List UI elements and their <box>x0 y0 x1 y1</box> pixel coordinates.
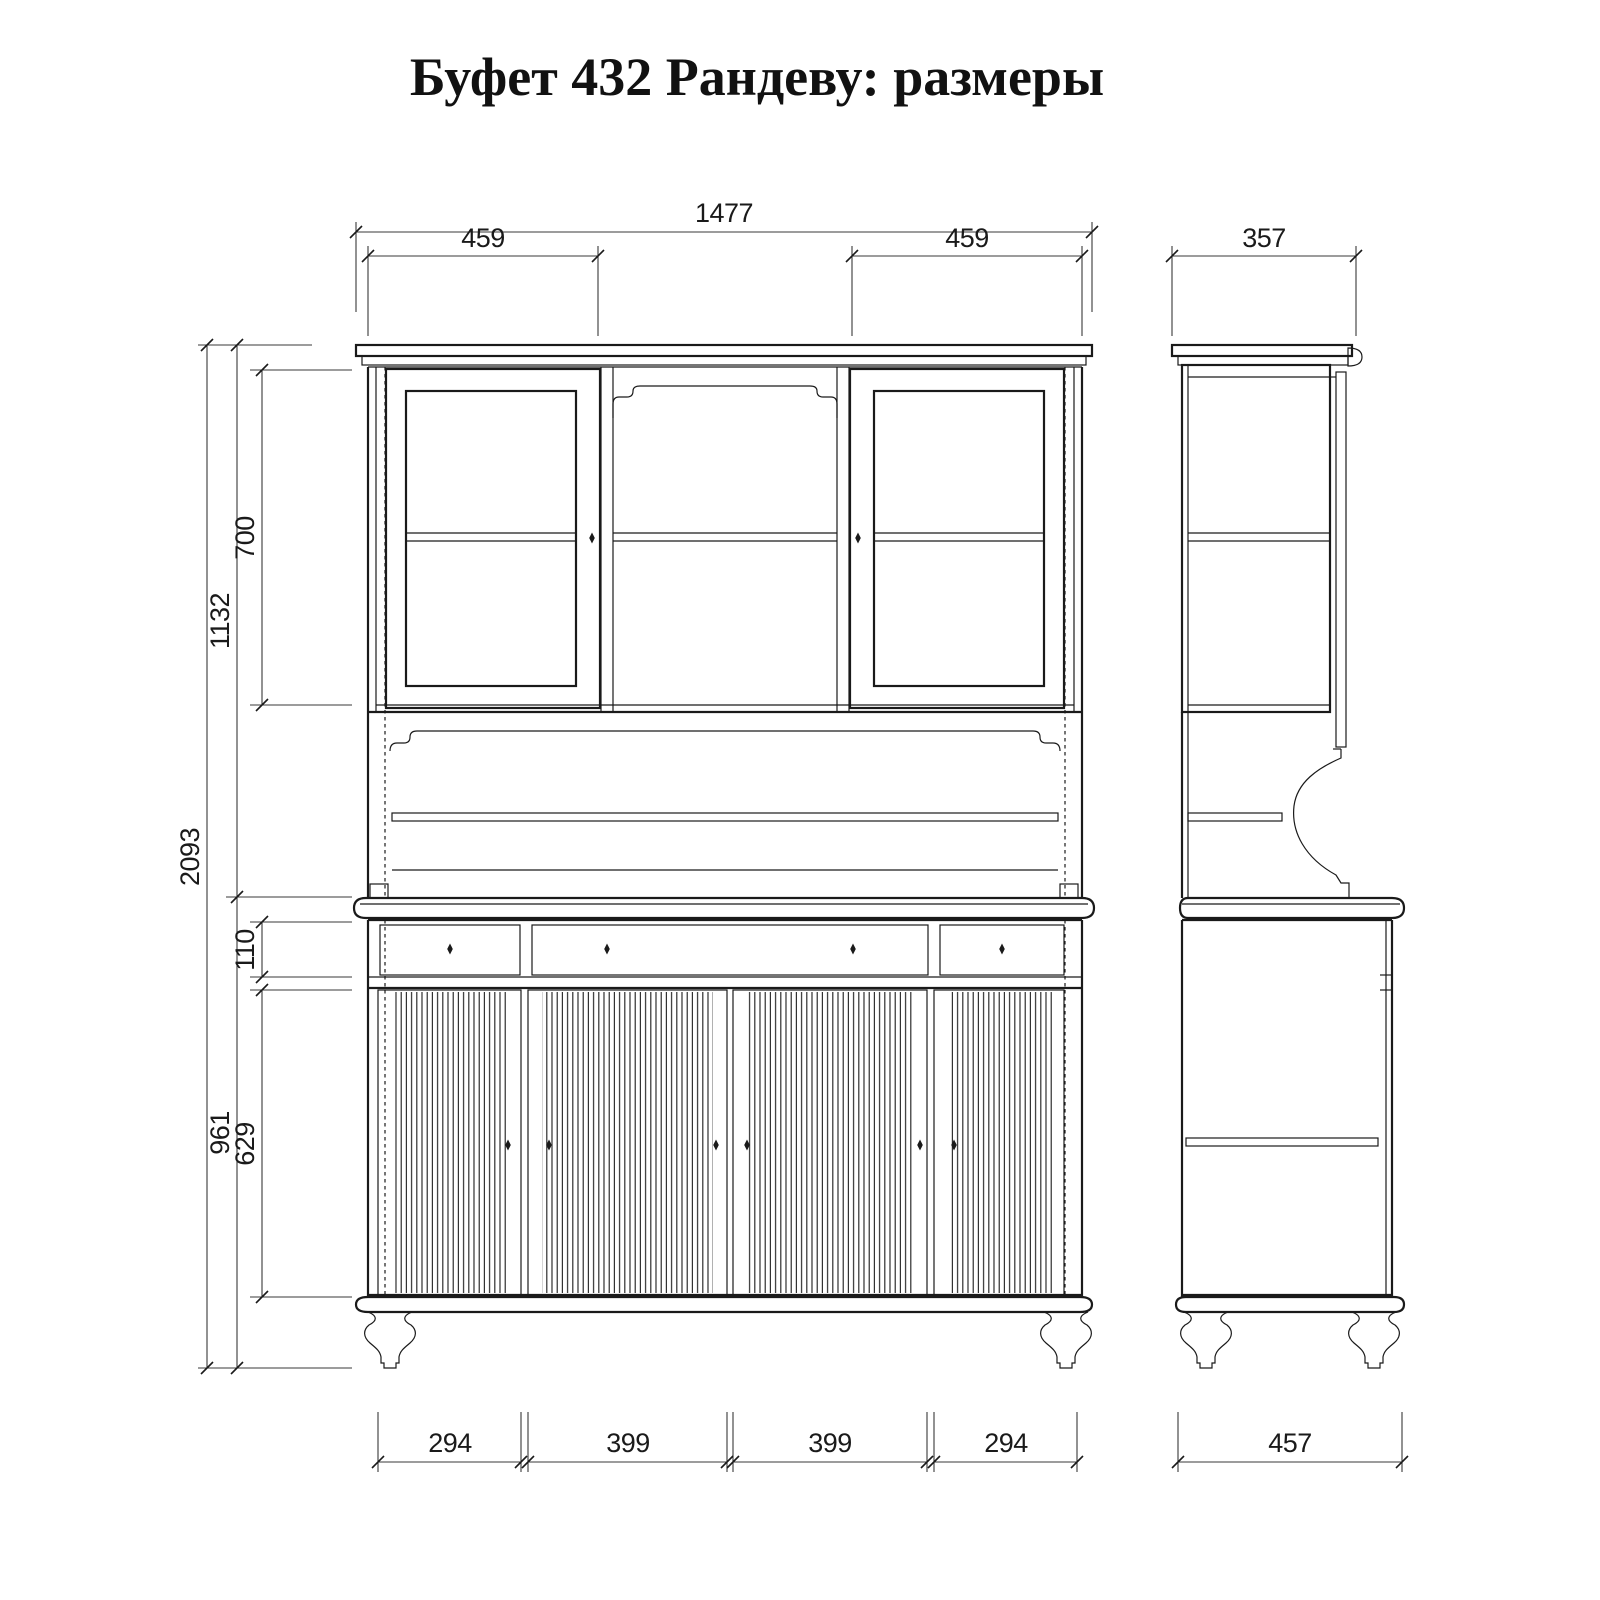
drawer-knob-icon <box>999 944 1005 955</box>
dim-lower-door4-width: 294 <box>984 1428 1028 1458</box>
front-left-foot <box>365 1312 416 1368</box>
door-fluting <box>392 992 507 1293</box>
plate-shelf <box>392 813 1058 821</box>
backsplash-panel <box>370 731 1078 898</box>
dim-total-height: 2093 <box>175 828 205 886</box>
counter-top <box>354 898 1094 918</box>
door-knob-icon <box>855 533 861 544</box>
side-front-foot <box>1181 1312 1232 1368</box>
drawing-page: Буфет 432 Рандеву: размеры <box>0 0 1600 1600</box>
side-door-edge <box>1336 372 1346 747</box>
dim-upper-right-door-width: 459 <box>945 223 989 253</box>
door-knob-icon <box>713 1140 719 1151</box>
drawer-knob-icon <box>447 944 453 955</box>
dim-lower-door1-width: 294 <box>428 1428 472 1458</box>
drawer-center <box>532 925 928 975</box>
dim-lower-depth: 457 <box>1268 1428 1312 1458</box>
side-crown-molding <box>1172 345 1362 366</box>
door-knob-icon <box>589 533 595 544</box>
front-hutch-sides <box>368 367 1082 898</box>
side-lower-body <box>1182 920 1392 1297</box>
drawer-knob-icon <box>604 944 610 955</box>
technical-drawing: Буфет 432 Рандеву: размеры <box>0 0 1600 1600</box>
side-backsplash <box>1182 712 1349 898</box>
door-fluting <box>747 992 913 1293</box>
side-plate-shelf <box>1188 813 1282 821</box>
dim-overall-width: 1477 <box>695 198 753 228</box>
side-counter-top <box>1180 898 1404 918</box>
upper-center-niche <box>601 367 849 712</box>
front-right-foot <box>1041 1312 1092 1368</box>
door-fluting <box>542 992 713 1293</box>
drawer-knob-icon <box>850 944 856 955</box>
side-back-foot <box>1349 1312 1400 1368</box>
side-view <box>1172 345 1404 1368</box>
page-title: Буфет 432 Рандеву: размеры <box>410 47 1104 107</box>
dim-lower-door-height: 629 <box>230 1122 260 1166</box>
front-plinth <box>356 1297 1092 1312</box>
door-fluting <box>948 992 1052 1293</box>
dim-glass-door-height: 700 <box>230 516 260 560</box>
dim-upper-left-door-width: 459 <box>461 223 505 253</box>
dim-upper-section-height: 1132 <box>205 593 235 649</box>
door-knob-icon <box>917 1140 923 1151</box>
upper-glass-door-right <box>850 369 1064 708</box>
side-plinth <box>1176 1297 1404 1312</box>
side-inner-shelf <box>1186 1138 1378 1146</box>
front-view <box>354 345 1094 1368</box>
dimension-labels: 1477 459 459 357 2093 1132 700 961 110 6… <box>175 198 1312 1458</box>
dim-drawer-height: 110 <box>230 929 260 971</box>
dim-lower-door2-width: 399 <box>606 1428 650 1458</box>
upper-glass-door-left <box>386 369 600 708</box>
front-crown-molding <box>356 345 1092 365</box>
dim-upper-depth: 357 <box>1242 223 1286 253</box>
lower-door-row <box>368 990 1082 1295</box>
dim-lower-door3-width: 399 <box>808 1428 852 1458</box>
side-hutch-box <box>1182 365 1346 898</box>
drawer-row <box>368 925 1082 988</box>
